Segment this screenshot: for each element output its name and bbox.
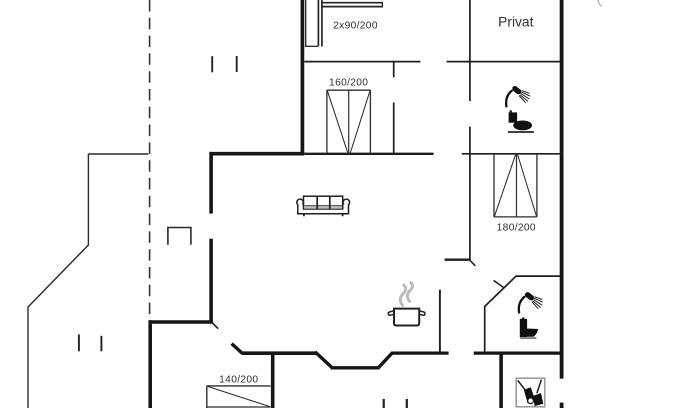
svg-text:180/200: 180/200 xyxy=(497,222,536,233)
svg-text:160/200: 160/200 xyxy=(329,78,368,89)
svg-text:2x90/200: 2x90/200 xyxy=(333,21,378,32)
svg-text:Privat: Privat xyxy=(498,15,533,30)
svg-text:140/200: 140/200 xyxy=(219,375,258,386)
